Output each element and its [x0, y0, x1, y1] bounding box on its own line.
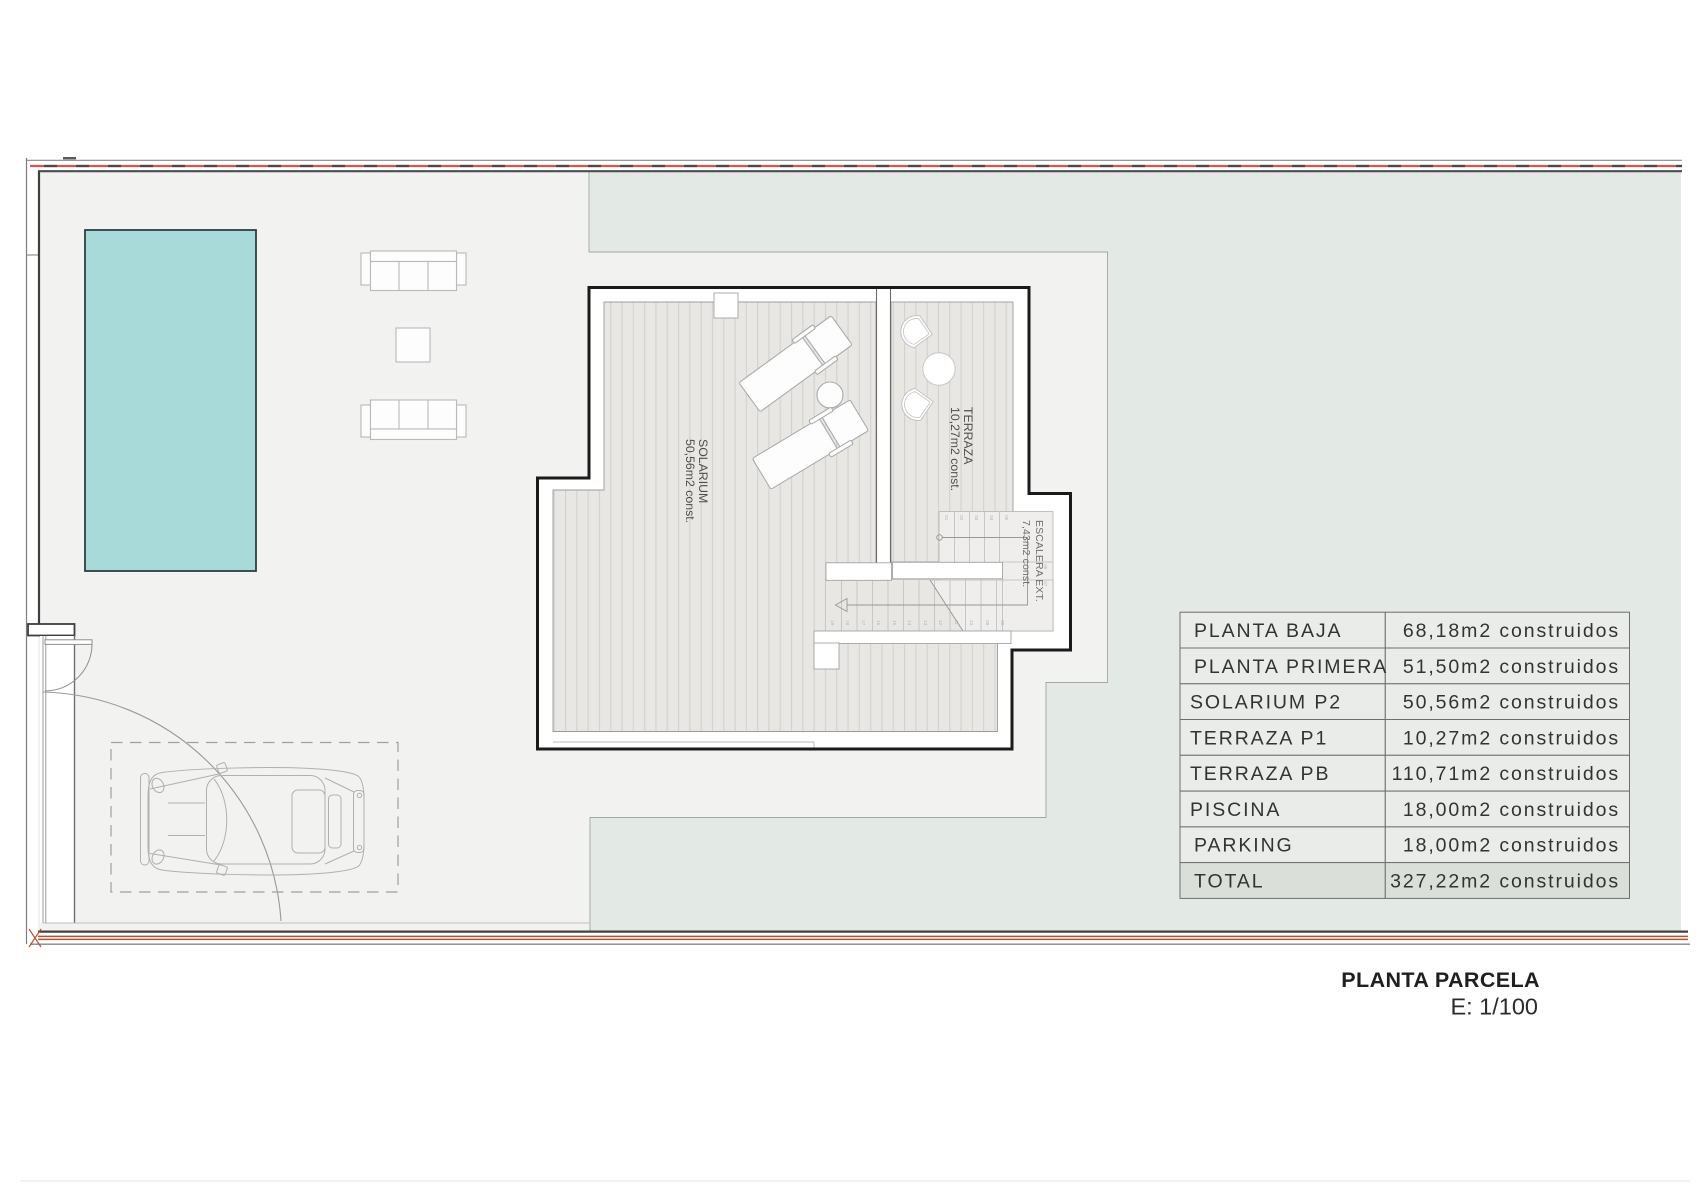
svg-text:02: 02	[958, 515, 964, 521]
svg-text:TERRAZA P1: TERRAZA P1	[1190, 727, 1328, 749]
svg-text:05: 05	[1003, 515, 1009, 521]
svg-text:14: 14	[906, 620, 912, 626]
svg-text:04: 04	[988, 515, 994, 521]
svg-text:16: 16	[875, 620, 881, 626]
svg-text:PISCINA: PISCINA	[1190, 799, 1281, 821]
svg-text:TERRAZA PB: TERRAZA PB	[1190, 763, 1330, 785]
svg-text:10: 10	[968, 620, 974, 626]
svg-text:19: 19	[829, 620, 835, 626]
svg-text:18: 18	[844, 620, 850, 626]
svg-text:11: 11	[953, 620, 959, 625]
svg-text:18,00m2 construidos: 18,00m2 construidos	[1403, 799, 1620, 821]
svg-text:10,27m2 construidos: 10,27m2 construidos	[1403, 727, 1620, 749]
svg-text:PARKING: PARKING	[1194, 835, 1294, 857]
svg-text:E: 1/100: E: 1/100	[1450, 994, 1538, 1020]
svg-text:01: 01	[943, 515, 949, 521]
svg-text:PLANTA PARCELA: PLANTA PARCELA	[1341, 968, 1540, 992]
svg-text:PLANTA BAJA: PLANTA BAJA	[1194, 620, 1342, 642]
svg-text:12: 12	[937, 620, 943, 626]
svg-text:18,00m2 construidos: 18,00m2 construidos	[1403, 835, 1620, 857]
svg-text:68,18m2 construidos: 68,18m2 construidos	[1403, 620, 1620, 642]
svg-text:17: 17	[860, 620, 866, 626]
svg-text:51,50m2 construidos: 51,50m2 construidos	[1403, 656, 1620, 678]
svg-text:09: 09	[984, 620, 990, 626]
svg-text:08: 08	[999, 620, 1005, 626]
svg-text:TOTAL: TOTAL	[1194, 871, 1265, 893]
svg-text:03: 03	[973, 515, 979, 521]
svg-text:110,71m2 construidos: 110,71m2 construidos	[1392, 763, 1620, 785]
svg-text:PLANTA PRIMERA: PLANTA PRIMERA	[1194, 656, 1388, 678]
svg-text:06: 06	[1042, 564, 1048, 570]
svg-text:50,56m2 construidos: 50,56m2 construidos	[1403, 692, 1620, 714]
svg-text:13: 13	[922, 620, 928, 626]
svg-text:SOLARIUM P2: SOLARIUM P2	[1190, 692, 1342, 714]
svg-text:15: 15	[891, 620, 897, 626]
svg-text:327,22m2 construidos: 327,22m2 construidos	[1390, 871, 1620, 893]
svg-text:07: 07	[1042, 581, 1048, 587]
